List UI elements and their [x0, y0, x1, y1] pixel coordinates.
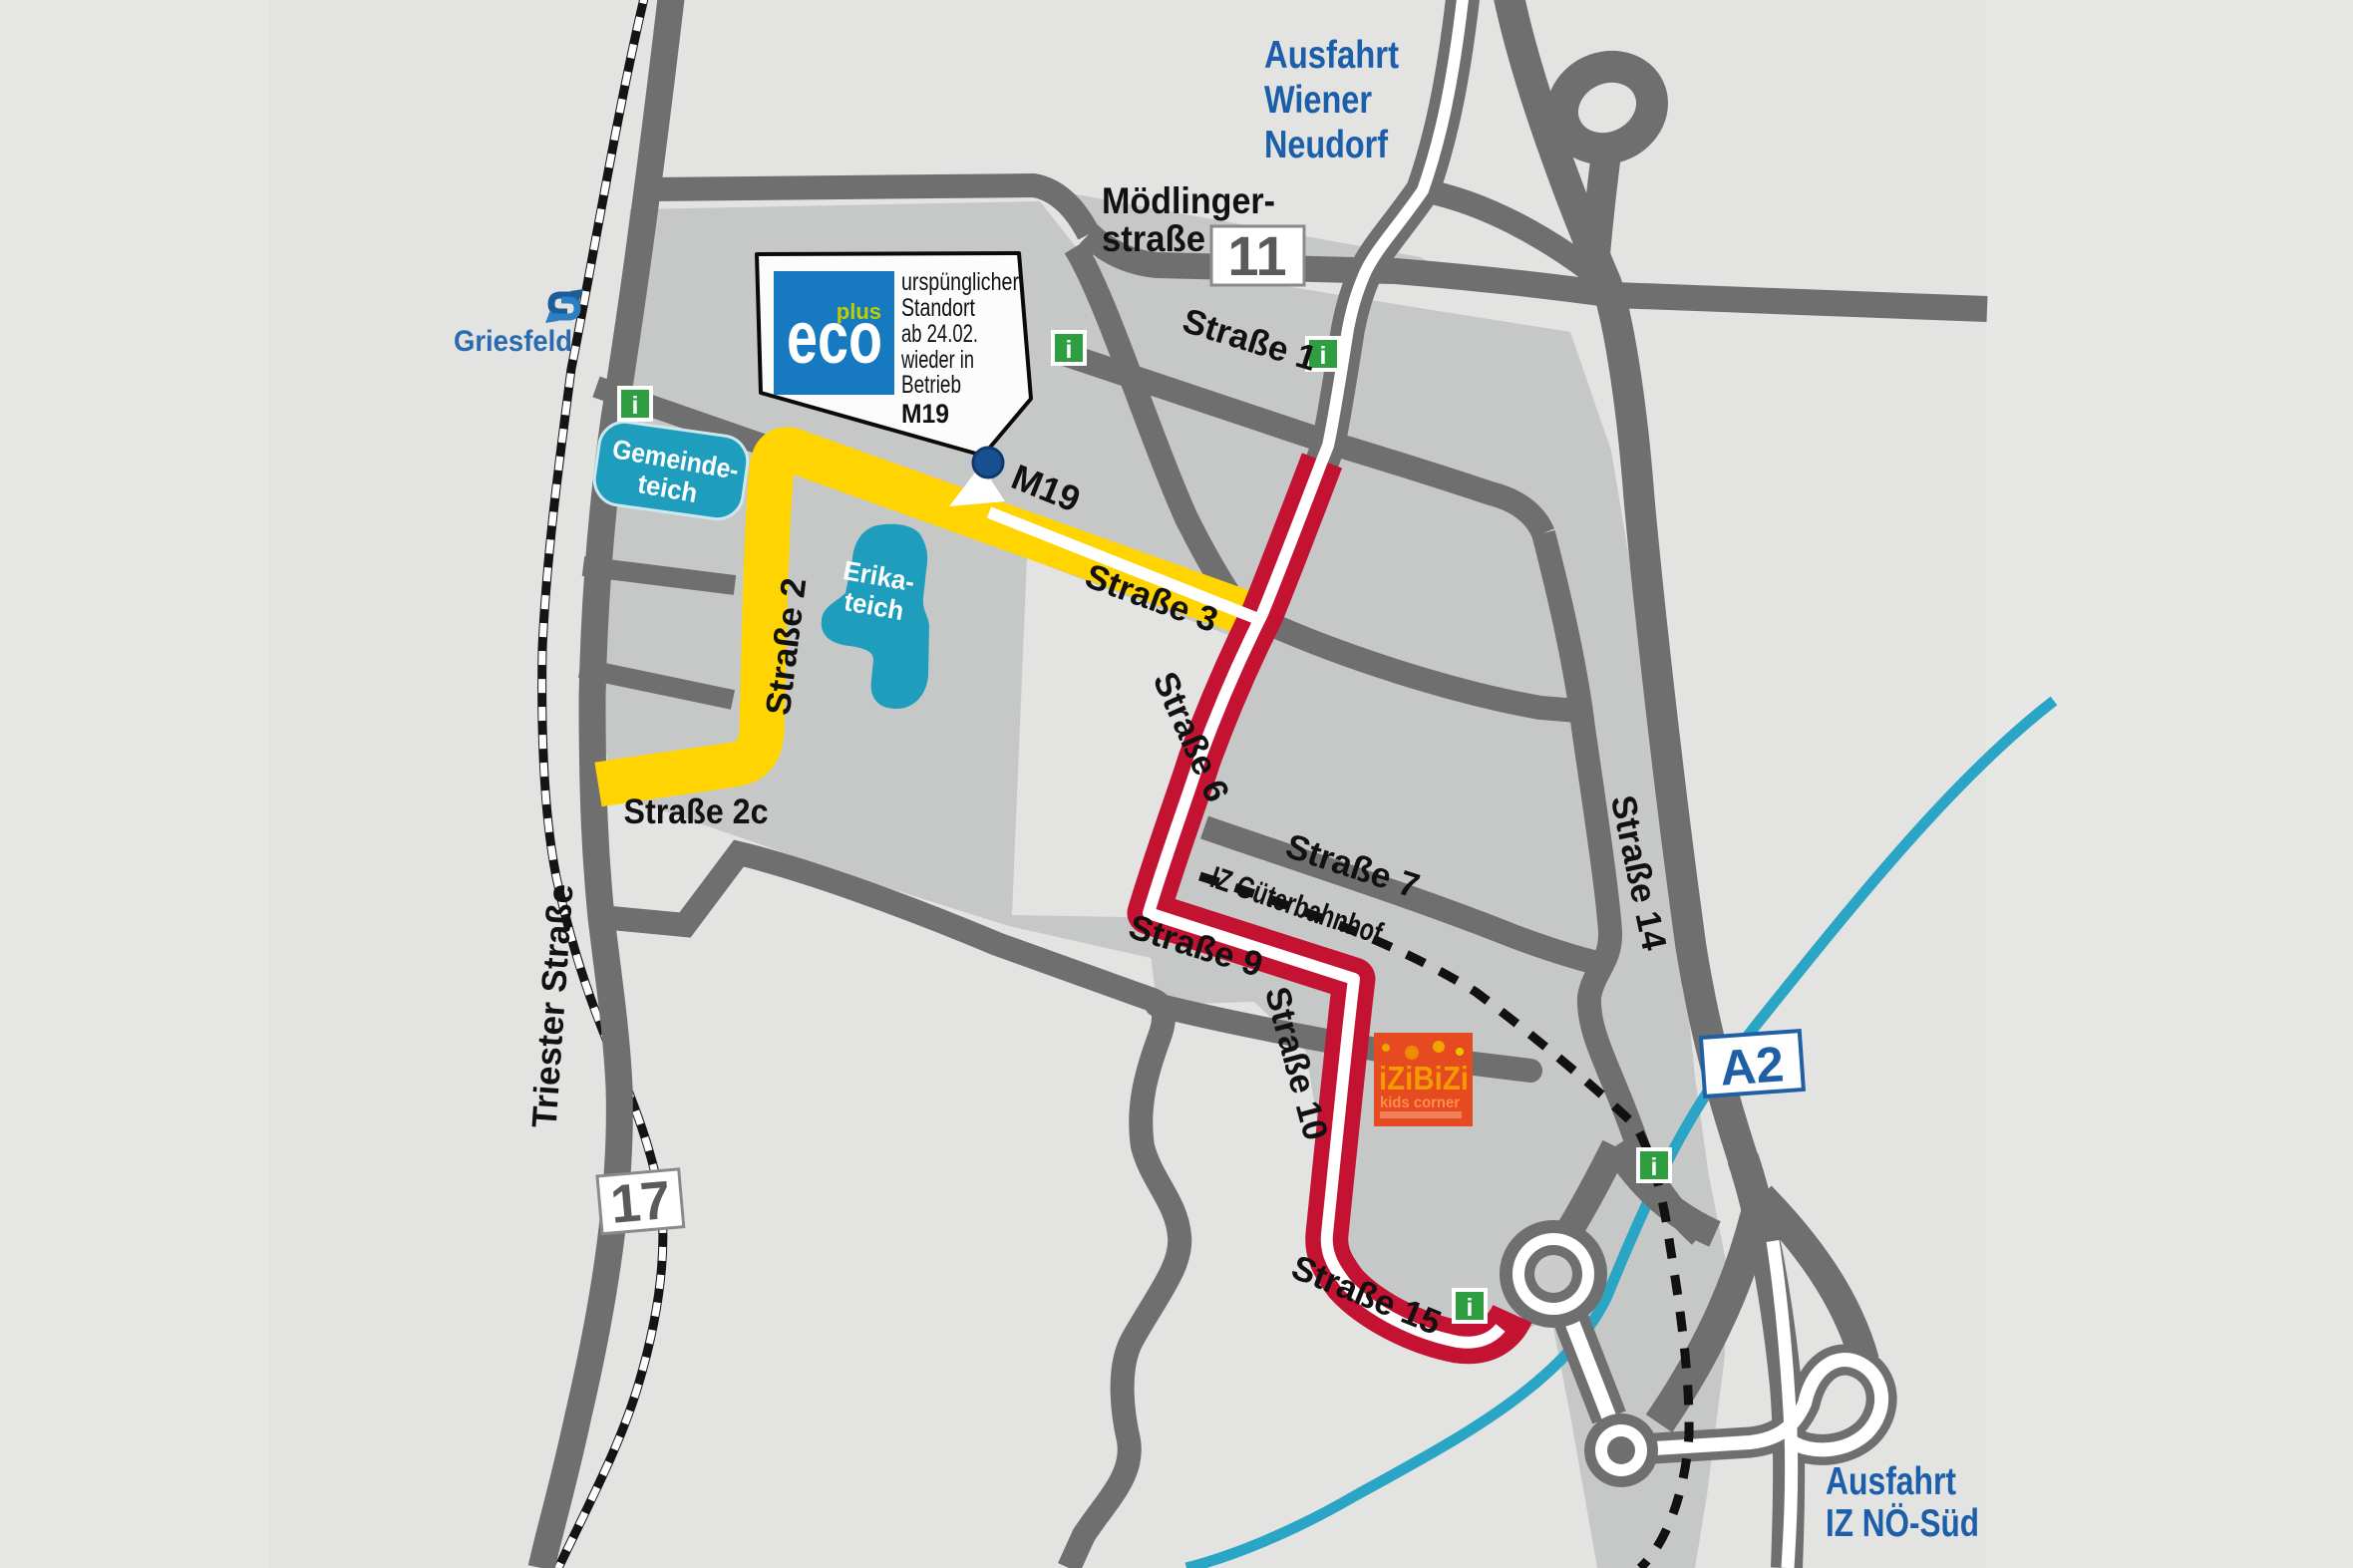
svg-text:Mödlinger-: Mödlinger- — [1102, 180, 1275, 221]
svg-text:11: 11 — [1227, 224, 1286, 287]
svg-text:17: 17 — [608, 1170, 673, 1235]
svg-text:M19: M19 — [901, 399, 949, 429]
svg-text:Neudorf: Neudorf — [1264, 124, 1389, 166]
svg-text:wieder in: wieder in — [900, 346, 974, 374]
svg-text:straße: straße — [1102, 218, 1205, 259]
svg-text:A2: A2 — [1718, 1036, 1786, 1096]
svg-text:Wiener: Wiener — [1264, 79, 1372, 122]
svg-text:Betrieb: Betrieb — [901, 371, 961, 399]
svg-text:Griesfeld: Griesfeld — [454, 325, 572, 358]
svg-text:urspünglicher: urspünglicher — [901, 268, 1019, 296]
svg-text:i: i — [632, 392, 639, 420]
svg-text:Ausfahrt: Ausfahrt — [1826, 1460, 1956, 1503]
svg-text:eco: eco — [787, 296, 882, 379]
svg-text:iZiBiZi: iZiBiZi — [1379, 1060, 1469, 1097]
svg-text:IZ NÖ-Süd: IZ NÖ-Süd — [1826, 1502, 1979, 1545]
svg-text:ab 24.02.: ab 24.02. — [901, 320, 978, 348]
svg-text:Standort: Standort — [901, 294, 975, 322]
svg-text:Straße 2c: Straße 2c — [624, 792, 769, 831]
svg-text:kids corner: kids corner — [1380, 1095, 1460, 1111]
svg-text:Ausfahrt: Ausfahrt — [1264, 34, 1399, 77]
